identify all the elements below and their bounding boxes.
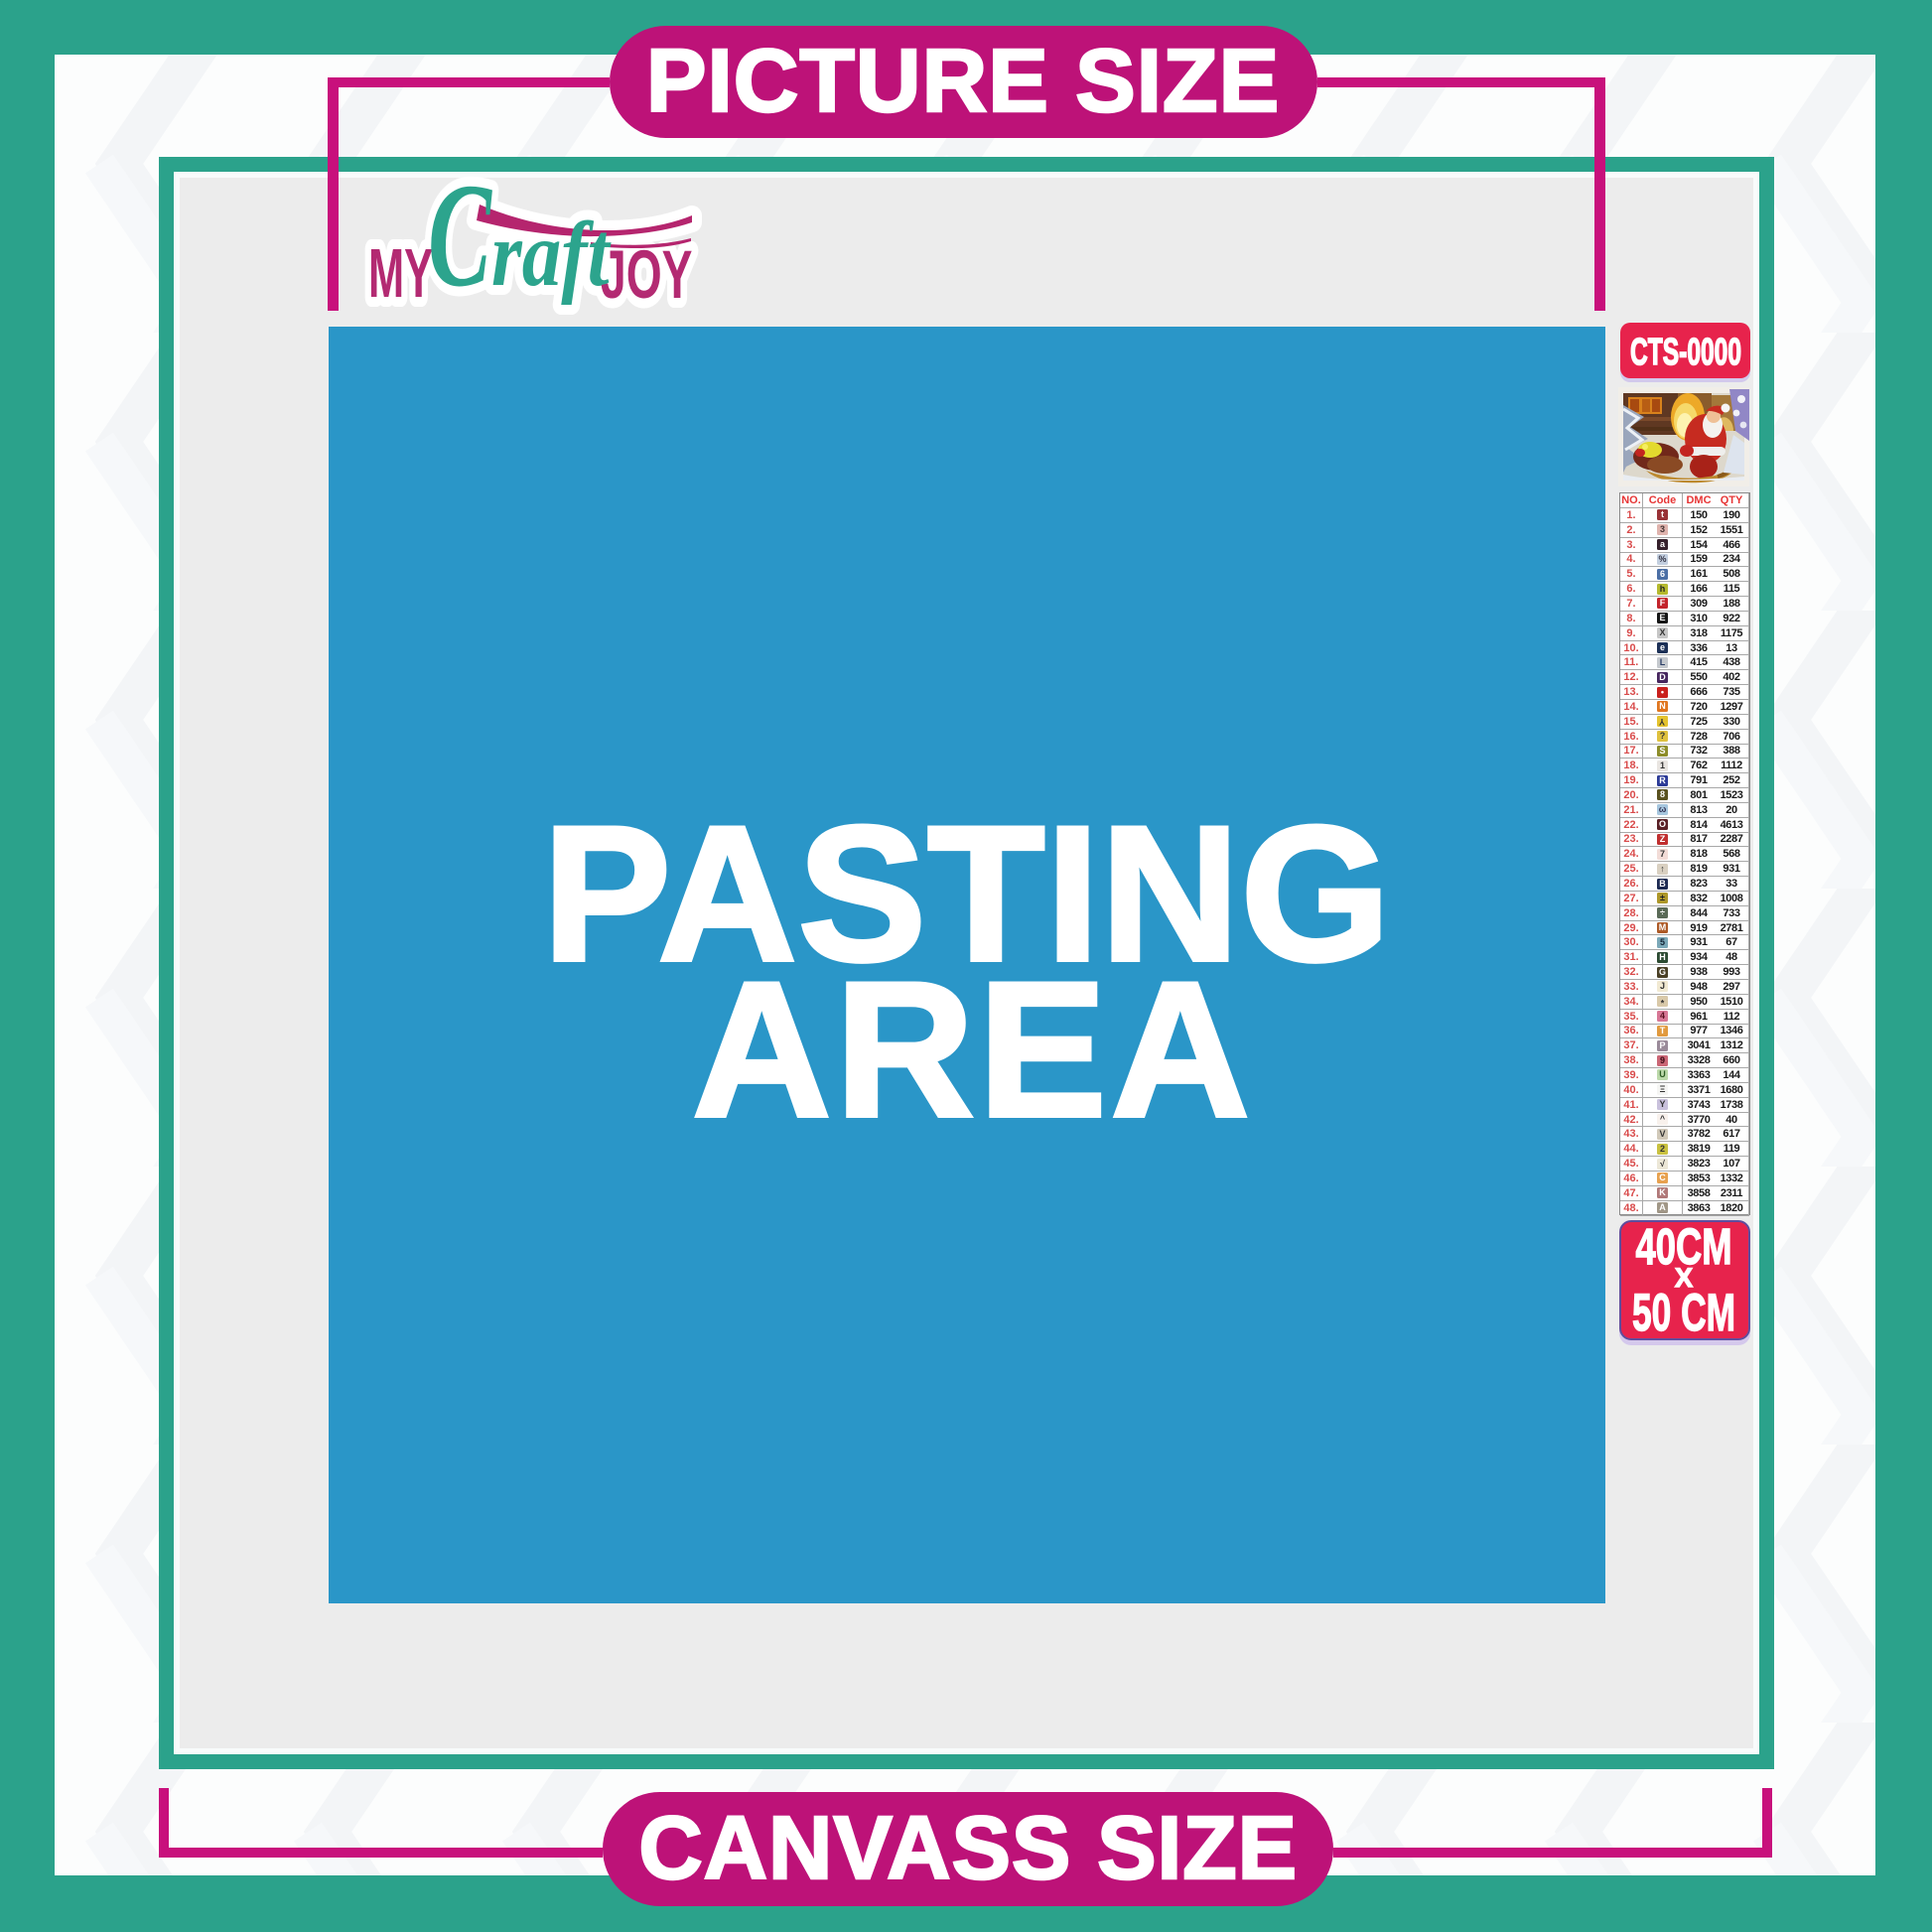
svg-text:JOY: JOY bbox=[601, 237, 692, 313]
svg-text:raft: raft bbox=[491, 203, 612, 305]
svg-text:CTS-0000: CTS-0000 bbox=[1630, 332, 1741, 373]
svg-text:MY: MY bbox=[368, 234, 433, 312]
svg-text:C: C bbox=[428, 169, 493, 318]
svg-text:50 CM: 50 CM bbox=[1632, 1284, 1735, 1336]
